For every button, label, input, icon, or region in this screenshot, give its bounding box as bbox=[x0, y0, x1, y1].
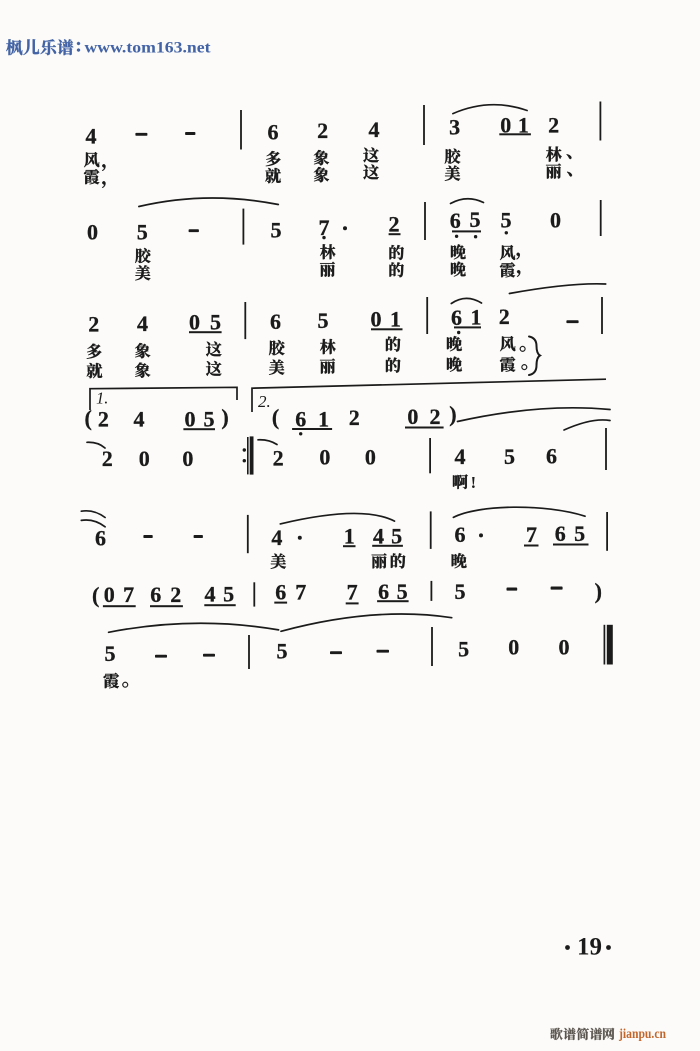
svg-text:0: 0 bbox=[550, 208, 561, 233]
svg-text:5: 5 bbox=[210, 309, 221, 334]
svg-text:2: 2 bbox=[273, 446, 284, 471]
svg-text:2: 2 bbox=[499, 304, 510, 329]
svg-text:5: 5 bbox=[574, 521, 585, 546]
svg-text:6: 6 bbox=[95, 525, 106, 550]
svg-text:5: 5 bbox=[223, 582, 234, 607]
svg-text:6: 6 bbox=[455, 522, 466, 547]
svg-text:jianpu.cn: jianpu.cn bbox=[618, 1026, 666, 1041]
svg-text:0: 0 bbox=[104, 582, 115, 607]
svg-text:2: 2 bbox=[98, 407, 109, 432]
svg-text:0: 0 bbox=[508, 635, 519, 660]
svg-text:6: 6 bbox=[270, 309, 281, 334]
svg-text:5: 5 bbox=[318, 308, 329, 333]
svg-text:2: 2 bbox=[88, 311, 99, 336]
svg-text:6: 6 bbox=[268, 120, 279, 145]
svg-text:1: 1 bbox=[471, 305, 482, 330]
svg-text:4: 4 bbox=[369, 117, 380, 142]
svg-text:5: 5 bbox=[204, 407, 215, 432]
svg-text:(: ( bbox=[85, 406, 92, 431]
svg-text:5: 5 bbox=[504, 444, 515, 469]
svg-text:0: 0 bbox=[139, 446, 150, 471]
svg-text:7: 7 bbox=[526, 522, 537, 547]
svg-text:0: 0 bbox=[407, 404, 418, 429]
svg-text:3: 3 bbox=[449, 115, 460, 140]
svg-text:7: 7 bbox=[347, 580, 358, 605]
svg-text:0: 0 bbox=[559, 635, 570, 660]
svg-text:0: 0 bbox=[365, 445, 376, 470]
svg-text:): ) bbox=[595, 579, 602, 604]
svg-text:4: 4 bbox=[134, 407, 145, 432]
svg-text:!: ! bbox=[471, 473, 477, 492]
svg-text:1: 1 bbox=[390, 307, 401, 332]
svg-text:2: 2 bbox=[349, 405, 360, 430]
svg-text:(: ( bbox=[92, 583, 99, 608]
svg-text:4: 4 bbox=[205, 582, 216, 607]
svg-text:7: 7 bbox=[295, 580, 306, 605]
svg-text:4: 4 bbox=[137, 311, 148, 336]
svg-text:6: 6 bbox=[150, 582, 161, 607]
svg-text:2: 2 bbox=[389, 212, 400, 237]
svg-text:4: 4 bbox=[455, 444, 466, 469]
svg-text:6: 6 bbox=[555, 521, 566, 546]
svg-text:1: 1 bbox=[344, 523, 355, 548]
svg-text:6: 6 bbox=[450, 208, 461, 233]
svg-text:2: 2 bbox=[170, 582, 181, 607]
svg-text:2: 2 bbox=[317, 118, 328, 143]
svg-text:www.tom163.net: www.tom163.net bbox=[85, 39, 212, 57]
svg-text:2: 2 bbox=[548, 112, 559, 137]
svg-text:2: 2 bbox=[102, 446, 113, 471]
svg-text:4: 4 bbox=[271, 525, 282, 550]
svg-text:6: 6 bbox=[451, 305, 462, 330]
svg-text:): ) bbox=[221, 405, 228, 430]
svg-text:0: 0 bbox=[371, 307, 382, 332]
svg-text:0: 0 bbox=[319, 445, 330, 470]
svg-text:0: 0 bbox=[182, 446, 193, 471]
svg-text:0: 0 bbox=[87, 219, 98, 244]
svg-text:5: 5 bbox=[277, 639, 288, 664]
svg-text:6: 6 bbox=[275, 580, 286, 605]
svg-text:): ) bbox=[449, 402, 456, 427]
svg-text:2: 2 bbox=[430, 404, 441, 429]
svg-text:1: 1 bbox=[318, 406, 329, 431]
svg-text:5: 5 bbox=[470, 207, 481, 232]
svg-text:4: 4 bbox=[86, 124, 97, 149]
svg-text:5: 5 bbox=[501, 208, 512, 233]
svg-text:19: 19 bbox=[577, 934, 602, 961]
svg-text:5: 5 bbox=[271, 218, 282, 243]
svg-text:5: 5 bbox=[105, 641, 116, 666]
svg-text:(: ( bbox=[272, 405, 279, 430]
svg-text:0: 0 bbox=[185, 407, 196, 432]
svg-text:2.: 2. bbox=[258, 392, 271, 411]
svg-text:5: 5 bbox=[137, 219, 148, 244]
svg-text:6: 6 bbox=[546, 444, 557, 469]
svg-text:7: 7 bbox=[123, 582, 134, 607]
svg-text:1.: 1. bbox=[96, 389, 108, 408]
svg-text:5: 5 bbox=[455, 579, 466, 604]
svg-text:6: 6 bbox=[295, 406, 306, 431]
svg-text:5: 5 bbox=[458, 636, 469, 661]
svg-text:0: 0 bbox=[189, 310, 200, 335]
